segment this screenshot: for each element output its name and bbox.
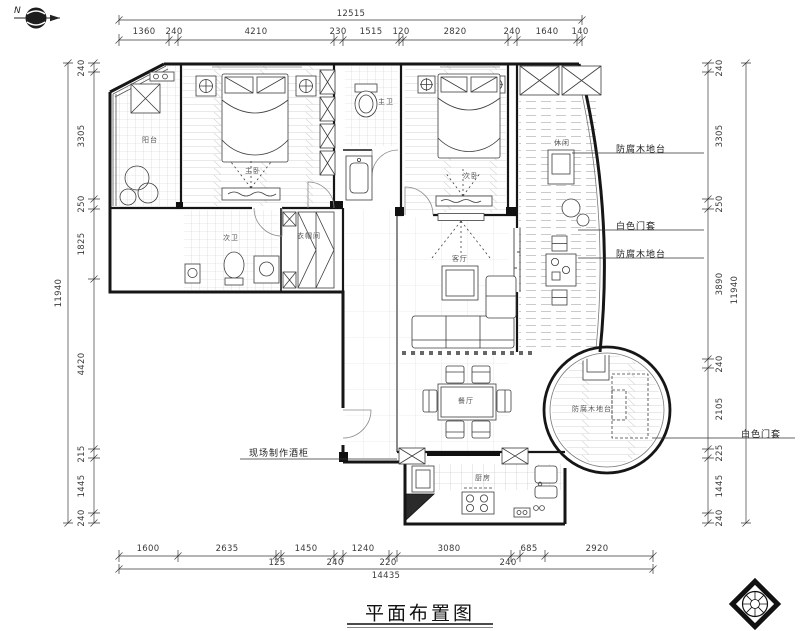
dim-left-segment: 240 xyxy=(77,509,87,526)
dim-right-segment: 240 xyxy=(715,355,725,372)
dim-top-segment: 120 xyxy=(392,27,409,37)
north-label: N xyxy=(14,6,21,16)
dim-left-segment: 215 xyxy=(77,445,87,462)
room-label-second-bath: 次卫 xyxy=(223,233,239,243)
dim-right-segment: 1445 xyxy=(715,475,725,498)
dim-top-segment: 230 xyxy=(329,27,346,37)
room-label-master-bedroom: 主卧 xyxy=(245,166,261,176)
room-label-leisure-deck: 休闲 xyxy=(554,138,570,148)
screen-divider xyxy=(402,351,532,355)
dim-left-segment: 3305 xyxy=(77,125,87,148)
dim-left-segment: 250 xyxy=(77,195,87,212)
dim-bottom-segment: 240 xyxy=(499,558,516,568)
room-label-round-platform: 防腐木地台 xyxy=(572,404,612,414)
dim-left-segment: 1825 xyxy=(77,233,87,256)
dim-bottom-total: 14435 xyxy=(372,571,401,581)
annotation-door-casing-1: 白色门套 xyxy=(616,219,656,232)
dim-top-segment: 1640 xyxy=(536,27,559,37)
room-label-dining-room: 餐厅 xyxy=(458,396,474,406)
dim-bottom-segment: 1600 xyxy=(137,544,160,554)
room-label-balcony: 阳台 xyxy=(142,135,158,145)
dim-right-segment: 250 xyxy=(715,195,725,212)
dim-bottom-segment: 685 xyxy=(520,544,537,554)
dim-top-segment: 2820 xyxy=(444,27,467,37)
room-label-kitchen: 厨房 xyxy=(475,473,491,483)
dim-top-segment: 240 xyxy=(503,27,520,37)
room-label-living-room: 客厅 xyxy=(452,254,468,264)
dim-top-segment: 1515 xyxy=(360,27,383,37)
page-title: 平面布置图 xyxy=(365,599,475,626)
dim-left-segment: 240 xyxy=(77,59,87,76)
room-label-second-bedroom: 次卧 xyxy=(463,171,479,181)
dim-bottom-segment: 3080 xyxy=(438,544,461,554)
dim-top-segment: 240 xyxy=(165,27,182,37)
floorplan-drawing xyxy=(0,0,800,631)
dim-right-segment: 225 xyxy=(715,444,725,461)
annotation-deck-platform-2: 防腐木地台 xyxy=(616,247,666,260)
dim-top-segment: 4210 xyxy=(245,27,268,37)
dim-right-total: 11940 xyxy=(730,276,740,305)
annotation-deck-platform-1: 防腐木地台 xyxy=(616,142,666,155)
floorplan-canvas: N 12515 1360 240 4210 230 1515 120 2820 … xyxy=(0,0,800,631)
dim-right-segment: 2105 xyxy=(715,398,725,421)
dim-left-segment: 4420 xyxy=(77,353,87,376)
annotation-door-casing-2: 白色门套 xyxy=(741,427,781,440)
dim-right-segment: 240 xyxy=(715,509,725,526)
dim-top-segment: 140 xyxy=(571,27,588,37)
studio-stamp-icon xyxy=(732,581,777,626)
dim-top-segment: 1360 xyxy=(133,27,156,37)
dim-top-total: 12515 xyxy=(337,9,366,19)
dim-right-segment: 240 xyxy=(715,59,725,76)
annotation-wine-cabinet: 现场制作酒柜 xyxy=(249,446,309,459)
room-label-master-bath: 主卫 xyxy=(378,97,394,107)
dim-left-total: 11940 xyxy=(54,279,64,308)
dim-bottom-segment: 2635 xyxy=(216,544,239,554)
dim-bottom-segment: 125 xyxy=(268,558,285,568)
dim-bottom-segment: 1240 xyxy=(352,544,375,554)
dim-right-segment: 3890 xyxy=(715,273,725,296)
dim-bottom-segment: 240 xyxy=(326,558,343,568)
dim-left-segment: 1445 xyxy=(77,475,87,498)
cloakroom-wardrobe xyxy=(283,212,334,288)
dim-right-segment: 3305 xyxy=(715,125,725,148)
dim-bottom-segment: 1450 xyxy=(295,544,318,554)
dim-bottom-segment: 2920 xyxy=(586,544,609,554)
dim-bottom-segment: 220 xyxy=(379,558,396,568)
room-label-cloakroom: 衣帽间 xyxy=(297,231,321,241)
